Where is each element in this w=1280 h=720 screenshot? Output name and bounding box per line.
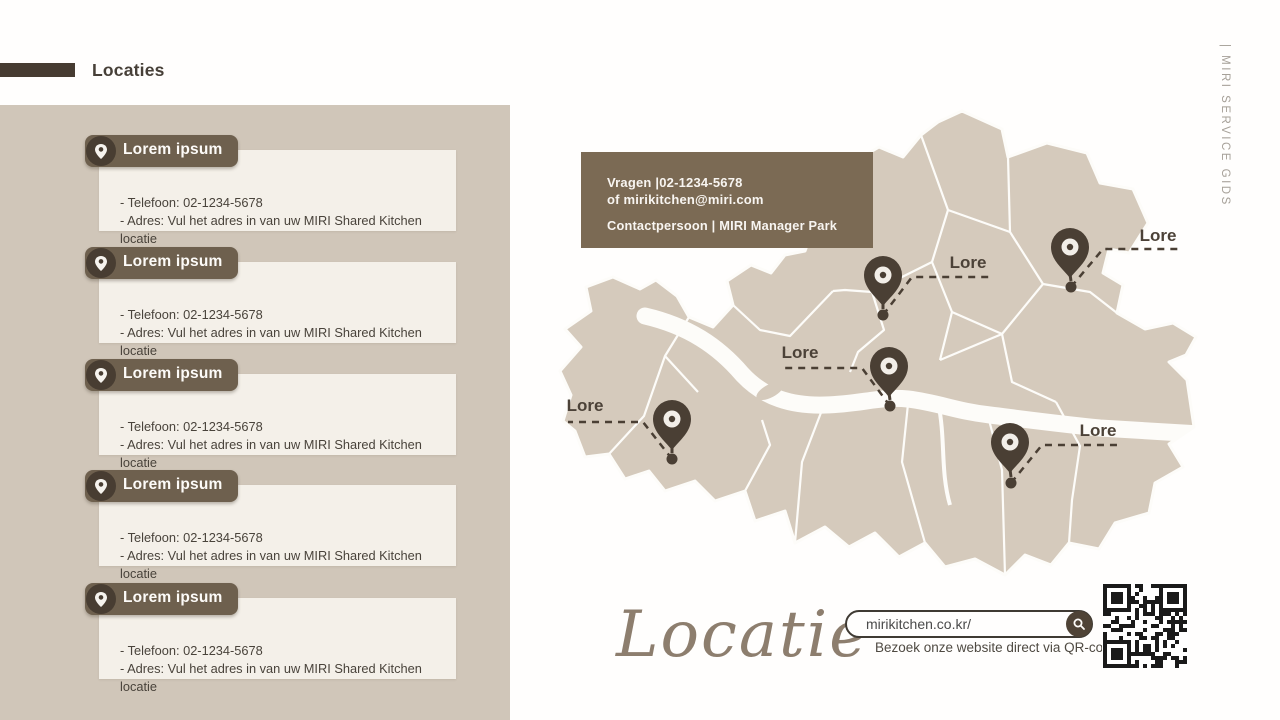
location-ribbon: Lorem ipsum <box>85 247 238 279</box>
side-vertical-label: | MIRI SERVICE GIDS <box>1219 44 1231 207</box>
location-title: Lorem ipsum <box>123 589 223 607</box>
location-title: Lorem ipsum <box>123 365 223 383</box>
website-url-text[interactable]: mirikitchen.co.kr/ <box>866 616 1066 632</box>
location-card: - Telefoon: 02-1234-5678 - Adres: Vul he… <box>0 583 510 683</box>
location-ribbon: Lorem ipsum <box>85 583 238 615</box>
location-pin-icon <box>86 471 116 501</box>
location-card: - Telefoon: 02-1234-5678 - Adres: Vul he… <box>0 135 510 235</box>
location-card: - Telefoon: 02-1234-5678 - Adres: Vul he… <box>0 247 510 347</box>
location-address: - Adres: Vul het adres in van uw MIRI Sh… <box>120 660 456 696</box>
location-ribbon: Lorem ipsum <box>85 359 238 391</box>
page-title: Locaties <box>92 60 165 81</box>
search-button[interactable] <box>1066 611 1092 637</box>
pin-label: Lore <box>567 396 604 415</box>
location-card: - Telefoon: 02-1234-5678 - Adres: Vul he… <box>0 470 510 570</box>
location-address: - Adres: Vul het adres in van uw MIRI Sh… <box>120 324 456 360</box>
location-ribbon: Lorem ipsum <box>85 135 238 167</box>
pin-anchor-dot <box>667 454 678 465</box>
location-pin-icon <box>86 360 116 390</box>
location-card: - Telefoon: 02-1234-5678 - Adres: Vul he… <box>0 359 510 459</box>
contact-phone-line: Vragen |02-1234-5678 <box>607 175 873 192</box>
pin-label: Lore <box>782 343 819 362</box>
location-title: Lorem ipsum <box>123 476 223 494</box>
location-title: Lorem ipsum <box>123 253 223 271</box>
location-pin-icon <box>86 584 116 614</box>
location-phone: - Telefoon: 02-1234-5678 <box>120 194 456 212</box>
script-title: Locatie <box>616 598 869 672</box>
pin-anchor-dot <box>1066 282 1077 293</box>
location-phone: - Telefoon: 02-1234-5678 <box>120 306 456 324</box>
location-address: - Adres: Vul het adres in van uw MIRI Sh… <box>120 212 456 248</box>
magnifier-icon <box>1072 617 1086 631</box>
pin-label: Lore <box>1080 421 1117 440</box>
location-address: - Adres: Vul het adres in van uw MIRI Sh… <box>120 547 456 583</box>
pin-anchor-dot <box>1006 478 1017 489</box>
contact-person-line: Contactpersoon | MIRI Manager Park <box>607 218 873 235</box>
location-pin-icon <box>86 136 116 166</box>
qr-caption: Bezoek onze website direct via QR-code! … <box>875 640 1138 655</box>
location-ribbon: Lorem ipsum <box>85 470 238 502</box>
location-phone: - Telefoon: 02-1234-5678 <box>120 642 456 660</box>
header-accent-bar <box>0 63 75 77</box>
pin-anchor-dot <box>878 310 889 321</box>
pin-label: Lore <box>1140 226 1177 245</box>
locations-panel: - Telefoon: 02-1234-5678 - Adres: Vul he… <box>0 105 510 720</box>
contact-box: Vragen |02-1234-5678 of mirikitchen@miri… <box>581 152 873 248</box>
location-address: - Adres: Vul het adres in van uw MIRI Sh… <box>120 436 456 472</box>
location-phone: - Telefoon: 02-1234-5678 <box>120 418 456 436</box>
pin-anchor-dot <box>885 401 896 412</box>
location-title: Lorem ipsum <box>123 141 223 159</box>
qr-code <box>1102 583 1188 669</box>
contact-email-line: of mirikitchen@miri.com <box>607 192 873 209</box>
location-phone: - Telefoon: 02-1234-5678 <box>120 529 456 547</box>
website-search-bar[interactable]: mirikitchen.co.kr/ <box>845 610 1093 638</box>
location-pin-icon <box>86 248 116 278</box>
pin-label: Lore <box>950 253 987 272</box>
